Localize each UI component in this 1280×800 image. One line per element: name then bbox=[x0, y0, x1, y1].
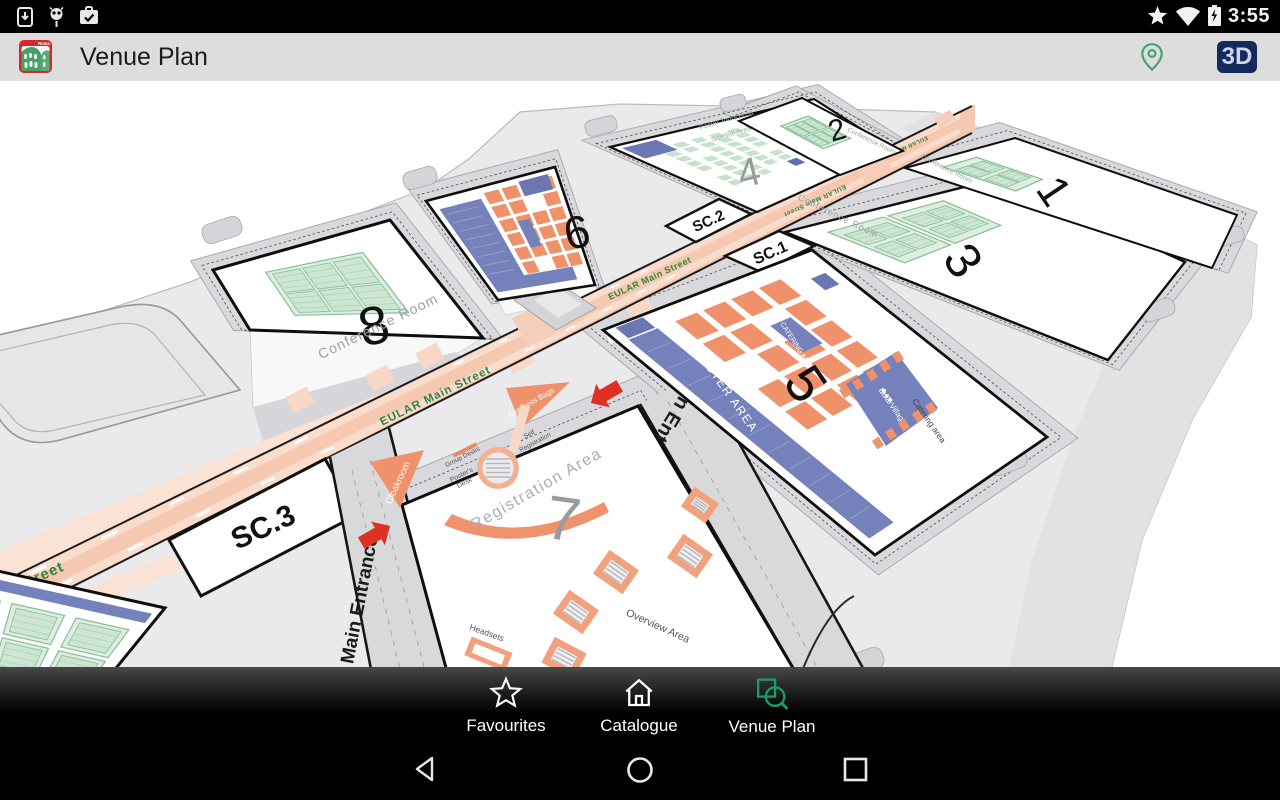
svg-text:Roma: Roma bbox=[38, 41, 50, 46]
